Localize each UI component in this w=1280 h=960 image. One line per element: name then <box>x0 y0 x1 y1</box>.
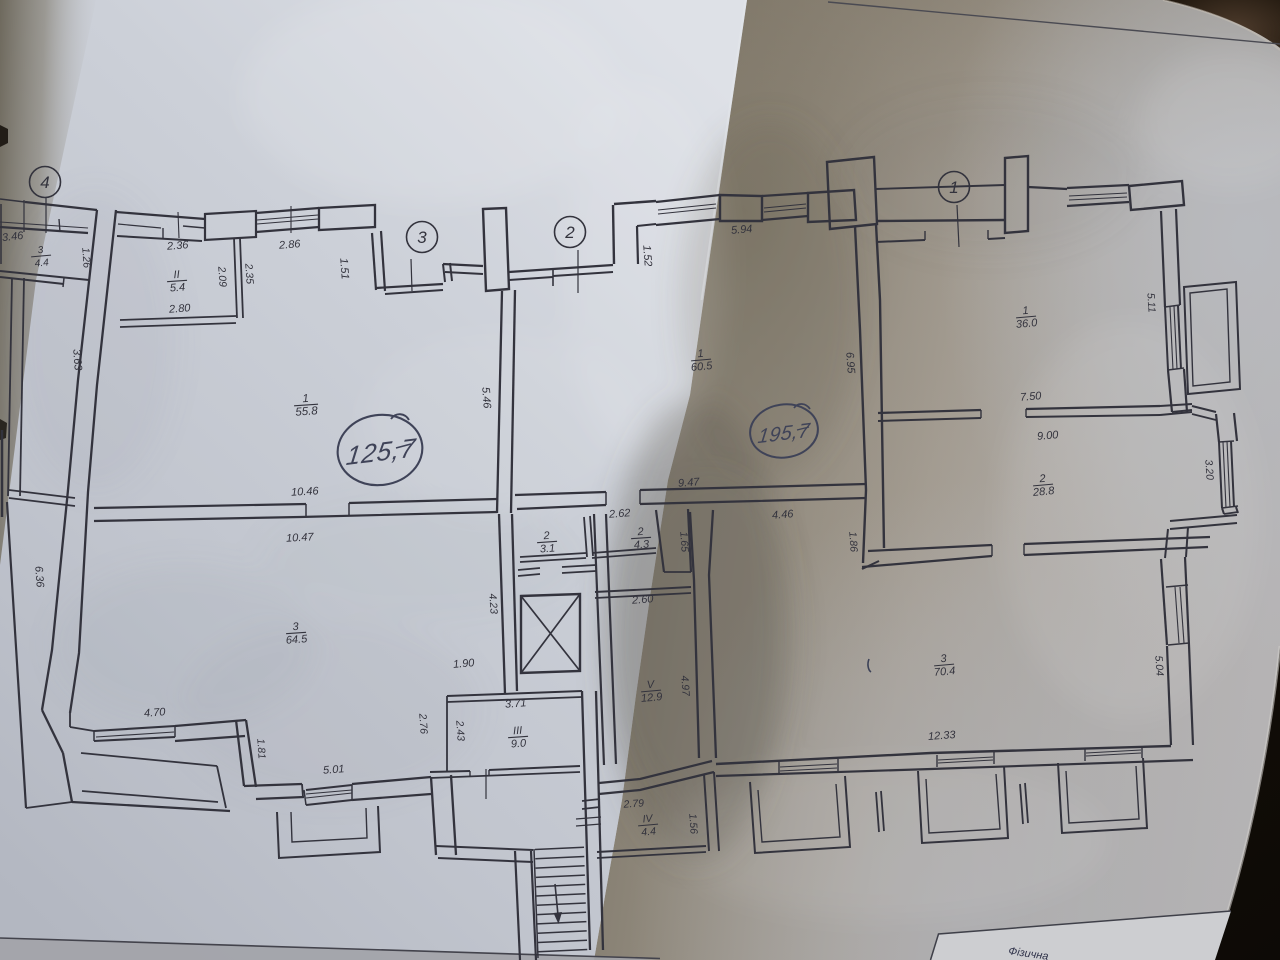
svg-text:7.50: 7.50 <box>1020 390 1043 404</box>
svg-text:2.80: 2.80 <box>168 302 192 316</box>
svg-text:3.46: 3.46 <box>1 230 24 244</box>
svg-text:2: 2 <box>542 530 550 542</box>
svg-text:2: 2 <box>1038 473 1046 486</box>
svg-text:2.86: 2.86 <box>278 238 302 252</box>
svg-text:6.36: 6.36 <box>32 566 46 589</box>
svg-text:9.00: 9.00 <box>1037 429 1060 443</box>
svg-text:3.20: 3.20 <box>1202 459 1215 480</box>
svg-text:36.0: 36.0 <box>1016 317 1039 331</box>
svg-text:1.86: 1.86 <box>846 531 859 552</box>
svg-text:6.95: 6.95 <box>843 352 857 375</box>
svg-text:4.97: 4.97 <box>678 675 691 697</box>
svg-text:3.71: 3.71 <box>505 697 527 710</box>
svg-text:2: 2 <box>564 223 575 242</box>
svg-text:55.8: 55.8 <box>295 405 319 419</box>
svg-text:1.90: 1.90 <box>453 657 476 671</box>
svg-text:2.35: 2.35 <box>242 262 255 284</box>
svg-text:1: 1 <box>302 393 309 405</box>
svg-text:4.70: 4.70 <box>144 706 167 720</box>
svg-text:5.94: 5.94 <box>731 223 753 237</box>
svg-text:9.0: 9.0 <box>511 737 528 750</box>
svg-text:2.43: 2.43 <box>453 719 466 741</box>
svg-text:2.62: 2.62 <box>608 507 631 521</box>
svg-text:64.5: 64.5 <box>285 633 308 647</box>
svg-text:2.60: 2.60 <box>631 593 655 607</box>
svg-text:1: 1 <box>697 348 704 360</box>
svg-text:2.76: 2.76 <box>416 712 429 734</box>
svg-text:1.81: 1.81 <box>254 738 267 759</box>
svg-text:10.46: 10.46 <box>291 485 320 498</box>
svg-text:4.46: 4.46 <box>772 508 795 522</box>
svg-text:2: 2 <box>636 526 644 538</box>
svg-text:5.46: 5.46 <box>479 387 493 410</box>
svg-text:2.09: 2.09 <box>215 265 228 287</box>
svg-text:4.23: 4.23 <box>486 593 499 614</box>
svg-text:70.4: 70.4 <box>934 665 956 679</box>
svg-text:5.01: 5.01 <box>323 763 345 776</box>
svg-text:II: II <box>173 269 180 281</box>
svg-text:12.9: 12.9 <box>641 691 663 705</box>
svg-text:1.52: 1.52 <box>640 245 653 267</box>
svg-text:10.47: 10.47 <box>286 531 315 544</box>
svg-text:1.51: 1.51 <box>337 258 350 280</box>
svg-text:1.56: 1.56 <box>686 813 699 834</box>
svg-text:1: 1 <box>1022 305 1029 317</box>
svg-text:60.5: 60.5 <box>691 360 714 374</box>
svg-text:2.36: 2.36 <box>166 239 190 253</box>
svg-text:5.11: 5.11 <box>1144 293 1157 313</box>
svg-text:4.4: 4.4 <box>641 825 657 838</box>
svg-text:5.4: 5.4 <box>170 281 186 294</box>
svg-text:3: 3 <box>417 228 427 247</box>
svg-text:4: 4 <box>40 173 49 192</box>
svg-text:2.79: 2.79 <box>622 797 644 810</box>
svg-text:3.1: 3.1 <box>540 542 556 555</box>
svg-text:5.04: 5.04 <box>1152 655 1165 676</box>
svg-text:III: III <box>513 725 523 738</box>
svg-text:4.4: 4.4 <box>34 257 49 269</box>
svg-text:12.33: 12.33 <box>928 729 957 743</box>
svg-text:28.8: 28.8 <box>1032 485 1056 499</box>
